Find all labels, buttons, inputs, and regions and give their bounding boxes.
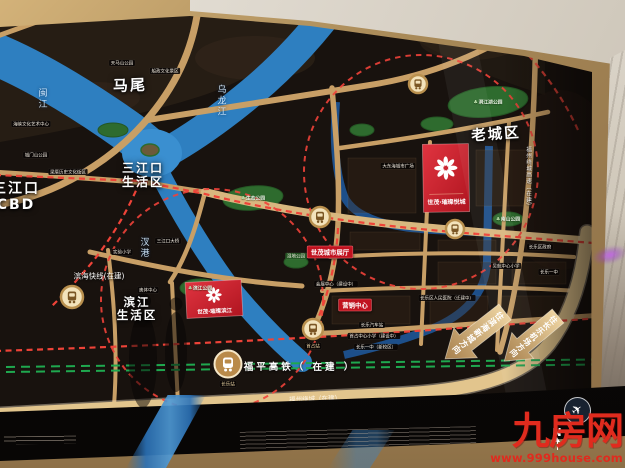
watermark-site-name: 九房网 [490,412,623,450]
map-board-photo: 世茂·璀璨悦城 世茂·璀璨滨江 往滨海新城方向 往长乐机场方向 福平高铁（ 在建… [0,0,625,468]
glass-reflections [129,293,187,408]
project-binjiang: 世茂·璀璨滨江 [185,280,243,319]
rail-station [215,351,242,378]
fine-print-left [4,436,76,445]
project-yuecheng-label: 世茂·璀璨悦城 [427,198,465,207]
watermark-site-url: www.999house.com [490,453,623,465]
watermark: 九房网 www.999house.com [490,412,623,465]
